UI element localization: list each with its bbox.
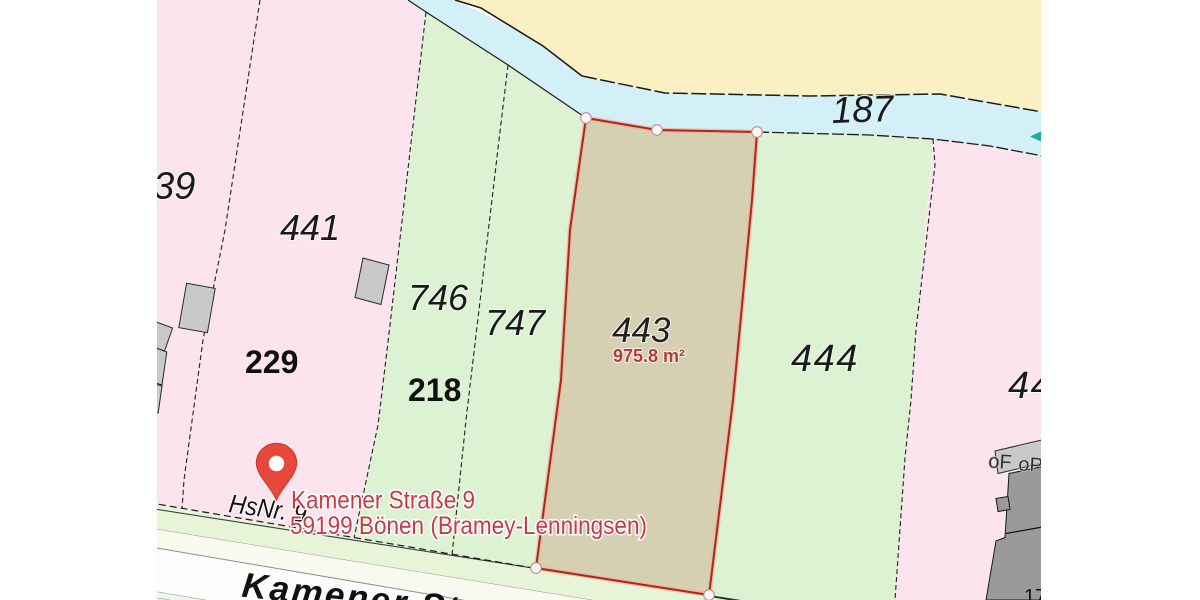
svg-text:444: 444: [791, 338, 859, 380]
svg-text:975.8 m²: 975.8 m²: [613, 346, 685, 366]
svg-text:443: 443: [612, 311, 671, 350]
svg-text:187: 187: [831, 88, 896, 131]
svg-text:218: 218: [408, 372, 461, 408]
svg-text:oP: oP: [1018, 454, 1044, 477]
svg-text:Kamener Straße 9: Kamener Straße 9: [291, 487, 475, 515]
svg-text:441: 441: [280, 207, 340, 248]
svg-text:747: 747: [485, 302, 547, 343]
svg-text:oF: oF: [988, 451, 1013, 474]
svg-text:59199 Bönen (Bramey-Lenningsen: 59199 Bönen (Bramey-Lenningsen): [290, 512, 647, 540]
svg-text:229: 229: [245, 344, 298, 380]
svg-text:746: 746: [408, 277, 469, 318]
